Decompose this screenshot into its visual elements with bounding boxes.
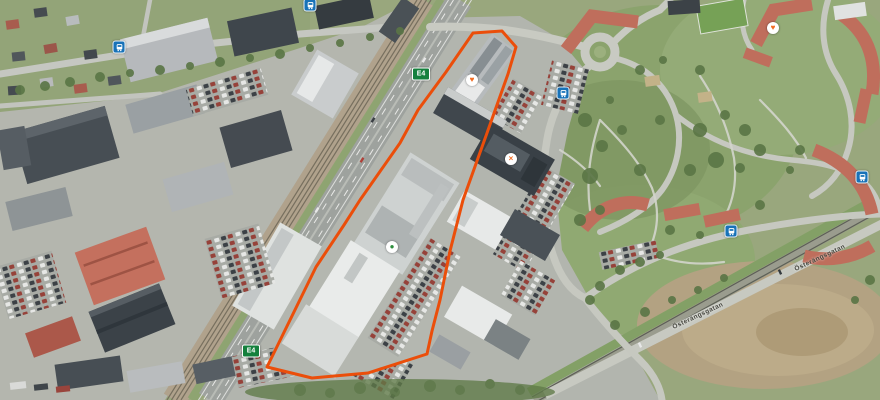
bus-stop-icon (725, 225, 738, 238)
heart-poi-marker-icon: ♥ (466, 74, 478, 86)
route-shield-e4-icon: E4 (242, 345, 260, 358)
heart-poi-marker-icon: ♥ (767, 22, 779, 34)
street-name-label: Österängsgatan (672, 301, 725, 331)
map-overlay-markers: E4E4♥♥×●ÖsterängsgatanÖsterängsgatan (0, 0, 880, 400)
aerial-map[interactable]: E4E4♥♥×●ÖsterängsgatanÖsterängsgatan (0, 0, 880, 400)
cross-poi-marker-icon: × (505, 153, 517, 165)
bus-stop-icon (304, 0, 317, 12)
street-name-label: Österängsgatan (794, 243, 847, 273)
bus-stop-icon (856, 171, 869, 184)
bus-stop-icon (113, 41, 126, 54)
route-shield-e4-icon: E4 (412, 68, 430, 81)
green-poi-marker-icon: ● (386, 241, 398, 253)
bus-stop-icon (557, 87, 570, 100)
